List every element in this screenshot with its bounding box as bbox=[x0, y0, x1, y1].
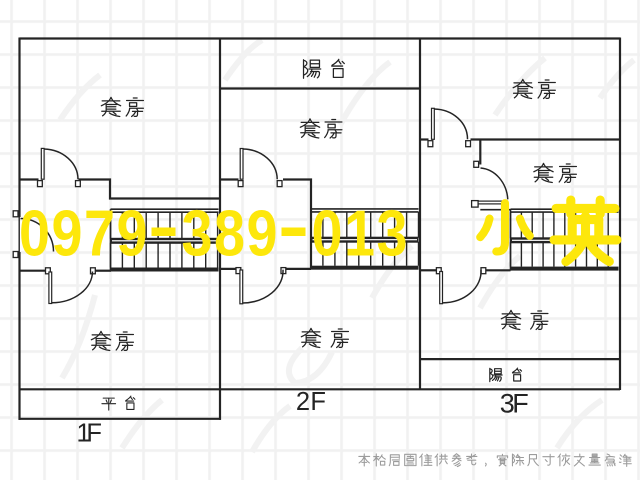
svg-text:9: 9 bbox=[117, 197, 148, 270]
svg-text:9: 9 bbox=[247, 197, 278, 270]
svg-text:8: 8 bbox=[214, 197, 245, 270]
svg-text:2F: 2F bbox=[296, 388, 326, 416]
svg-text:3: 3 bbox=[377, 197, 408, 270]
svg-text:7: 7 bbox=[84, 197, 115, 270]
svg-text:3F: 3F bbox=[500, 388, 529, 418]
svg-text:9: 9 bbox=[52, 197, 83, 270]
svg-text:0: 0 bbox=[19, 197, 50, 270]
svg-text:0: 0 bbox=[312, 197, 343, 270]
svg-text:3: 3 bbox=[182, 197, 213, 270]
svg-text:1: 1 bbox=[344, 197, 375, 270]
svg-text:1F: 1F bbox=[77, 420, 103, 448]
